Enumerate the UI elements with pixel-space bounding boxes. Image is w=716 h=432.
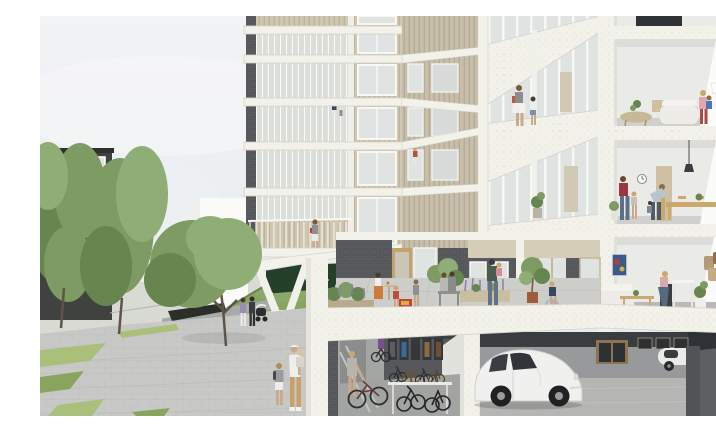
resident-in-window (413, 147, 418, 163)
garage-back-door (596, 340, 628, 364)
wall-clock (638, 175, 647, 184)
garage-windows (638, 338, 688, 349)
room-dining (609, 140, 716, 224)
room-living (600, 237, 716, 314)
wall-painting (612, 254, 627, 276)
white-sofa-room1 (660, 100, 698, 124)
section-cut-apartments (598, 16, 716, 334)
underground-parking-garage (464, 328, 716, 416)
flat-screen-tv (636, 16, 682, 26)
wall-mounted-bicycles (388, 338, 443, 360)
room-family-living (617, 39, 716, 126)
architectural-rendering (40, 16, 716, 416)
